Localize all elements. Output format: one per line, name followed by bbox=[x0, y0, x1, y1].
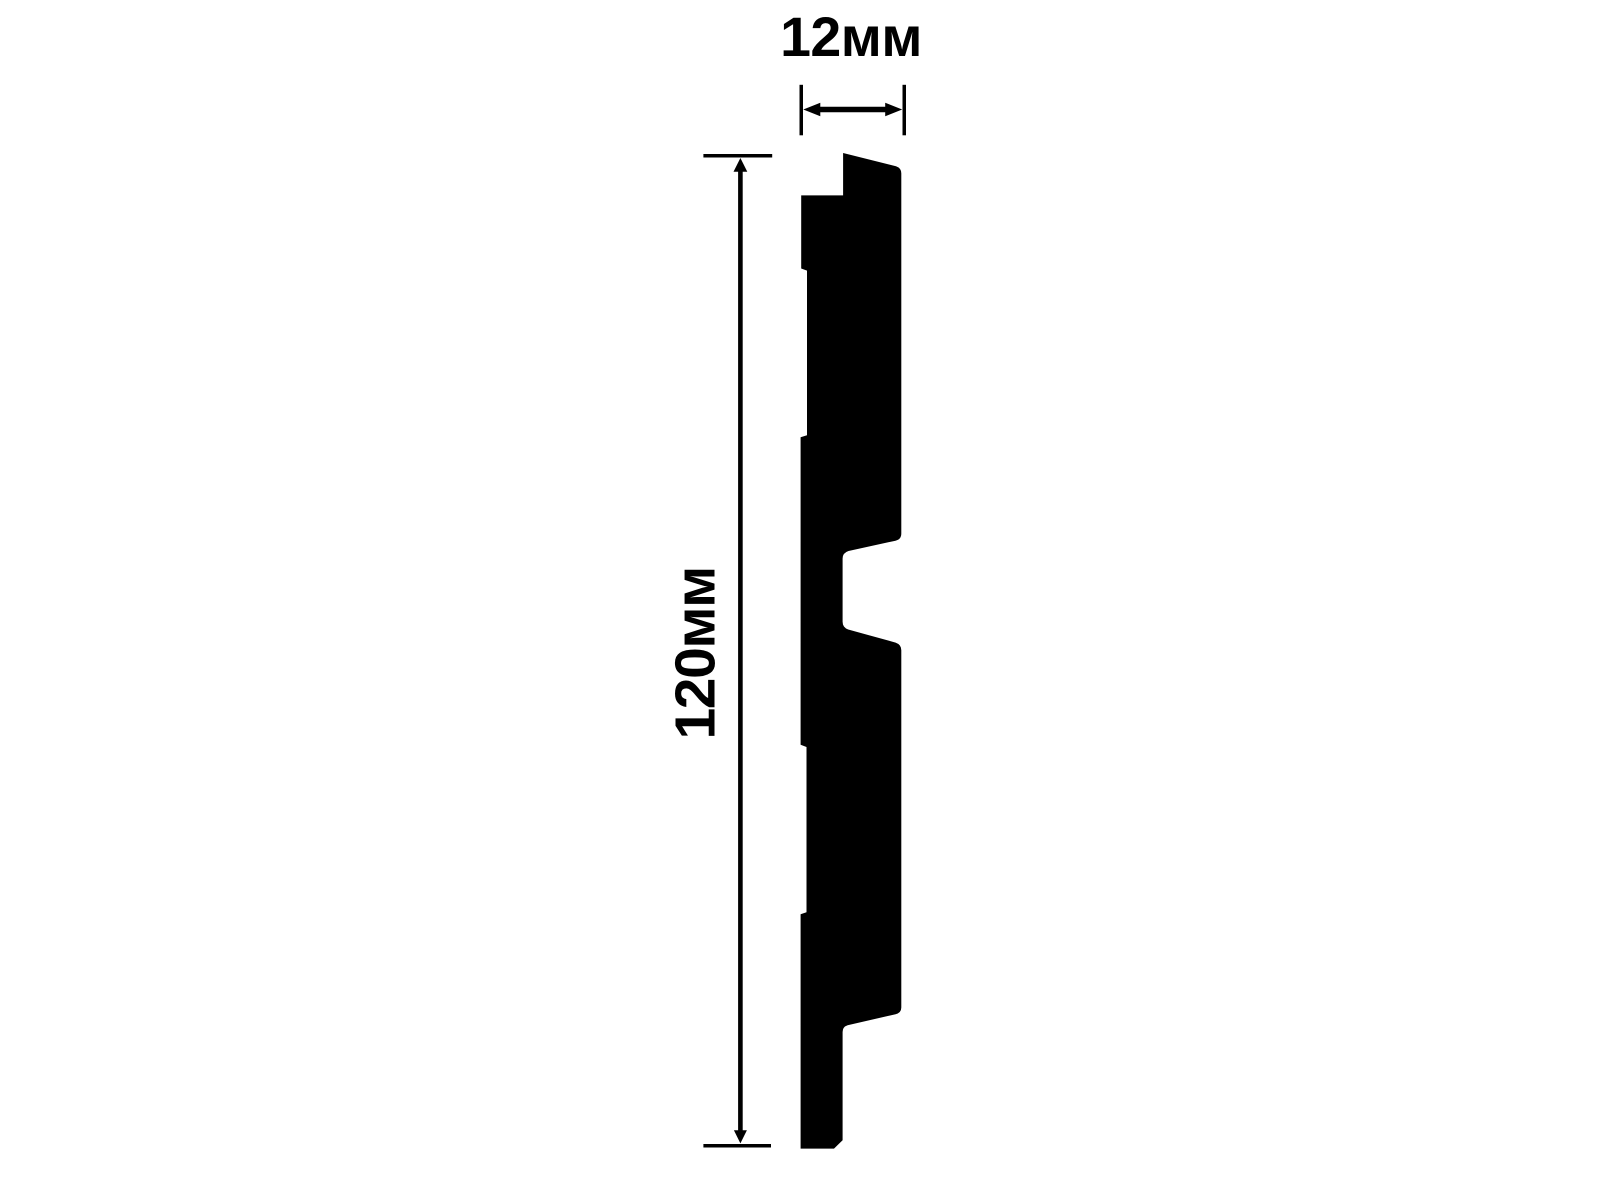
svg-text:12мм: 12мм bbox=[780, 6, 922, 68]
svg-text:120мм: 120мм bbox=[664, 567, 728, 739]
